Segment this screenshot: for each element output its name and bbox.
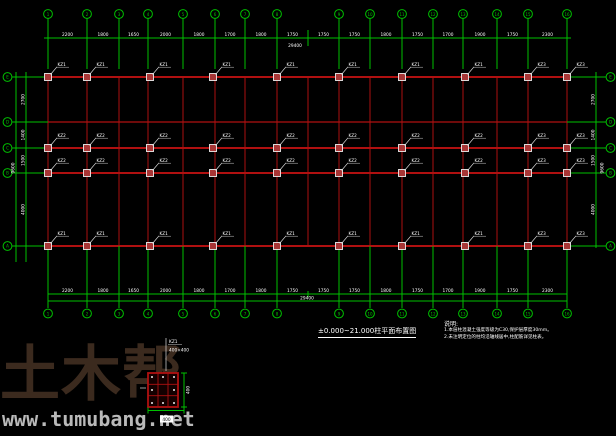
svg-text:A: A — [6, 244, 9, 249]
column-marker — [462, 145, 469, 152]
svg-text:29400: 29400 — [300, 296, 314, 302]
svg-text:1700: 1700 — [225, 288, 236, 294]
column-marker — [564, 145, 571, 152]
svg-text:3: 3 — [118, 12, 121, 17]
svg-text:1800: 1800 — [256, 32, 267, 38]
svg-text:16: 16 — [564, 12, 570, 17]
rebar-dot — [173, 376, 175, 378]
column-marker — [210, 145, 217, 152]
svg-text:KZ1: KZ1 — [223, 231, 232, 236]
svg-text:KZ2: KZ2 — [160, 133, 169, 138]
column-marker — [45, 170, 52, 177]
svg-text:2000: 2000 — [160, 32, 171, 38]
svg-text:D: D — [609, 120, 612, 125]
drawing-notes: 说明: 1.本层柱混凝土强度等级为C30,保护层厚度30mm。 2.未注明定位的… — [444, 321, 552, 342]
svg-text:5: 5 — [182, 12, 185, 17]
svg-text:1750: 1750 — [318, 32, 329, 38]
svg-text:2000: 2000 — [160, 288, 171, 294]
svg-text:1750: 1750 — [318, 288, 329, 294]
svg-text:12: 12 — [430, 312, 436, 317]
svg-text:1750: 1750 — [287, 32, 298, 38]
cad-drawing: 1234567891011121314151622001800165020001… — [0, 0, 616, 436]
svg-text:C: C — [609, 146, 612, 151]
svg-text:1900: 1900 — [475, 288, 486, 294]
column-marker — [147, 74, 154, 81]
svg-text:2700: 2700 — [591, 94, 597, 105]
svg-text:KZ2: KZ2 — [58, 158, 67, 163]
column-marker — [336, 170, 343, 177]
svg-text:KZ1: KZ1 — [223, 62, 232, 67]
right-axis-dimensions: EDCBA27001400150040009600 — [567, 72, 615, 250]
column-marker — [210, 243, 217, 250]
svg-text:8: 8 — [276, 12, 279, 17]
rebar-dot — [162, 376, 164, 378]
svg-text:KZ2: KZ2 — [412, 133, 421, 138]
svg-text:E: E — [609, 75, 612, 80]
svg-text:A: A — [609, 244, 612, 249]
rebar-dot — [162, 402, 164, 404]
svg-text:KZ3: KZ3 — [538, 158, 547, 163]
svg-text:11: 11 — [399, 312, 405, 317]
column-marker — [336, 145, 343, 152]
svg-text:7: 7 — [244, 12, 247, 17]
svg-text:2300: 2300 — [542, 32, 553, 38]
svg-text:2700: 2700 — [21, 94, 27, 105]
column-marker — [45, 145, 52, 152]
svg-text:1800: 1800 — [98, 288, 109, 294]
svg-text:2200: 2200 — [62, 32, 73, 38]
column-marker — [462, 74, 469, 81]
svg-text:KZ1: KZ1 — [475, 62, 484, 67]
svg-text:KZ3: KZ3 — [577, 62, 586, 67]
svg-text:KZ1: KZ1 — [58, 231, 67, 236]
svg-text:9: 9 — [338, 312, 341, 317]
svg-text:1750: 1750 — [507, 288, 518, 294]
svg-text:KZ2: KZ2 — [412, 158, 421, 163]
svg-text:1800: 1800 — [256, 288, 267, 294]
svg-text:KZ1: KZ1 — [58, 62, 67, 67]
svg-text:KZ3: KZ3 — [538, 231, 547, 236]
column-marker — [462, 243, 469, 250]
column-marker — [84, 74, 91, 81]
svg-text:6: 6 — [214, 12, 217, 17]
rebar-dot — [151, 376, 153, 378]
svg-text:1500: 1500 — [21, 155, 27, 166]
svg-text:1800: 1800 — [194, 288, 205, 294]
svg-text:KZ1: KZ1 — [475, 231, 484, 236]
svg-text:1800: 1800 — [381, 288, 392, 294]
column-marker — [147, 243, 154, 250]
svg-text:1700: 1700 — [443, 32, 454, 38]
column-marker — [399, 74, 406, 81]
svg-text:12: 12 — [430, 12, 436, 17]
svg-text:KZ1: KZ1 — [287, 62, 296, 67]
svg-text:1750: 1750 — [287, 288, 298, 294]
notes-item: 2.未注明定位的柱均沿轴线居中,柱配筋详见柱表。 — [444, 335, 552, 342]
column-marker — [399, 243, 406, 250]
column-marker — [45, 74, 52, 81]
svg-text:1: 1 — [47, 12, 50, 17]
svg-text:KZ1: KZ1 — [97, 231, 106, 236]
svg-text:KZ2: KZ2 — [349, 133, 358, 138]
svg-text:2300: 2300 — [542, 288, 553, 294]
svg-text:1700: 1700 — [443, 288, 454, 294]
svg-text:KZ2: KZ2 — [58, 133, 67, 138]
svg-text:1750: 1750 — [349, 288, 360, 294]
svg-text:4: 4 — [147, 12, 150, 17]
svg-text:2: 2 — [86, 312, 89, 317]
svg-text:E: E — [6, 75, 9, 80]
svg-text:KZ2: KZ2 — [287, 133, 296, 138]
column-marker — [274, 170, 281, 177]
drawing-title: ±0.000~21.000柱平面布置图 — [318, 328, 416, 338]
column-marker — [45, 243, 52, 250]
svg-text:9600: 9600 — [11, 162, 17, 173]
svg-text:KZ2: KZ2 — [97, 158, 106, 163]
column-marker — [147, 145, 154, 152]
svg-text:10: 10 — [367, 12, 373, 17]
svg-text:1400: 1400 — [21, 129, 27, 140]
column-marker — [399, 170, 406, 177]
column-marker — [210, 170, 217, 177]
column-marker — [274, 74, 281, 81]
rebar-dot — [151, 402, 153, 404]
column-marker — [564, 74, 571, 81]
column-markers: KZ1KZ1KZ1KZ1KZ1KZ1KZ1KZ1KZ3KZ3KZ2KZ2KZ2K… — [45, 62, 589, 250]
svg-text:16: 16 — [564, 312, 570, 317]
svg-text:KZ3: KZ3 — [538, 133, 547, 138]
bottom-axis-dimensions: 1234567891011121314151622001800165020001… — [44, 246, 572, 318]
svg-text:KZ1: KZ1 — [160, 231, 169, 236]
svg-text:KZ1: KZ1 — [349, 62, 358, 67]
column-marker — [274, 145, 281, 152]
svg-text:B: B — [609, 171, 612, 176]
svg-text:1750: 1750 — [507, 32, 518, 38]
column-marker — [462, 170, 469, 177]
column-grid-lines — [48, 77, 567, 246]
rebar-dot — [173, 389, 175, 391]
svg-text:1750: 1750 — [412, 32, 423, 38]
svg-text:400: 400 — [186, 386, 192, 394]
svg-text:KZ1: KZ1 — [412, 62, 421, 67]
rebar-dot — [173, 402, 175, 404]
svg-text:3: 3 — [118, 312, 121, 317]
svg-text:KZ2: KZ2 — [475, 158, 484, 163]
svg-text:1500: 1500 — [591, 155, 597, 166]
left-axis-dimensions: EDCBA27001400150040009600 — [3, 72, 48, 262]
svg-text:9: 9 — [338, 12, 341, 17]
svg-text:KZ1: KZ1 — [160, 62, 169, 67]
svg-text:11: 11 — [399, 12, 405, 17]
column-marker — [336, 74, 343, 81]
svg-text:6: 6 — [214, 312, 217, 317]
rebar-dot — [151, 389, 153, 391]
svg-text:4000: 4000 — [21, 204, 27, 215]
column-marker — [336, 243, 343, 250]
svg-text:KZ2: KZ2 — [160, 158, 169, 163]
svg-text:1750: 1750 — [412, 288, 423, 294]
svg-text:KZ3: KZ3 — [577, 133, 586, 138]
svg-text:29400: 29400 — [288, 43, 302, 49]
cad-viewer-canvas: 土木帮 www.tumubang.net 1234567891011121314… — [0, 0, 616, 436]
svg-text:KZ3: KZ3 — [538, 62, 547, 67]
svg-text:KZ1: KZ1 — [97, 62, 106, 67]
svg-text:7: 7 — [244, 312, 247, 317]
svg-text:KZ2: KZ2 — [349, 158, 358, 163]
svg-text:1700: 1700 — [225, 32, 236, 38]
svg-text:9600: 9600 — [600, 162, 606, 173]
svg-text:KZ2: KZ2 — [287, 158, 296, 163]
svg-text:1: 1 — [47, 312, 50, 317]
svg-text:15: 15 — [525, 12, 531, 17]
column-marker — [525, 74, 532, 81]
svg-text:1750: 1750 — [349, 32, 360, 38]
column-marker — [564, 243, 571, 250]
svg-text:14: 14 — [494, 312, 500, 317]
column-marker — [399, 145, 406, 152]
svg-text:15: 15 — [525, 312, 531, 317]
svg-text:KZ1: KZ1 — [412, 231, 421, 236]
svg-text:KZ2: KZ2 — [97, 133, 106, 138]
column-marker — [274, 243, 281, 250]
svg-text:KZ2: KZ2 — [223, 133, 232, 138]
svg-text:400×400: 400×400 — [169, 348, 189, 354]
svg-text:1800: 1800 — [98, 32, 109, 38]
svg-text:4000: 4000 — [591, 204, 597, 215]
column-marker — [525, 170, 532, 177]
svg-text:1650: 1650 — [128, 288, 139, 294]
svg-text:13: 13 — [460, 12, 466, 17]
column-marker — [210, 74, 217, 81]
svg-text:5: 5 — [182, 312, 185, 317]
svg-text:13: 13 — [460, 312, 466, 317]
svg-text:KZ3: KZ3 — [577, 231, 586, 236]
svg-text:1900: 1900 — [475, 32, 486, 38]
column-marker — [84, 243, 91, 250]
svg-text:D: D — [6, 120, 9, 125]
column-marker — [525, 243, 532, 250]
svg-text:1650: 1650 — [128, 32, 139, 38]
column-section-detail: KZ1400×400400400 — [140, 338, 192, 423]
column-marker — [84, 145, 91, 152]
svg-text:14: 14 — [494, 12, 500, 17]
svg-text:1800: 1800 — [381, 32, 392, 38]
top-axis-dimensions: 1234567891011121314151622001800165020001… — [44, 10, 572, 69]
svg-text:KZ1: KZ1 — [349, 231, 358, 236]
svg-text:KZ2: KZ2 — [223, 158, 232, 163]
svg-text:KZ1: KZ1 — [169, 339, 178, 345]
svg-text:C: C — [6, 146, 9, 151]
svg-text:1800: 1800 — [194, 32, 205, 38]
svg-text:2200: 2200 — [62, 288, 73, 294]
column-marker — [84, 170, 91, 177]
svg-text:KZ2: KZ2 — [475, 133, 484, 138]
svg-text:400: 400 — [162, 417, 170, 423]
svg-text:KZ3: KZ3 — [577, 158, 586, 163]
svg-text:B: B — [6, 171, 9, 176]
column-marker — [564, 170, 571, 177]
svg-text:1400: 1400 — [591, 129, 597, 140]
svg-text:8: 8 — [276, 312, 279, 317]
svg-text:4: 4 — [147, 312, 150, 317]
column-marker — [525, 145, 532, 152]
column-marker — [147, 170, 154, 177]
svg-text:10: 10 — [367, 312, 373, 317]
svg-text:KZ1: KZ1 — [287, 231, 296, 236]
svg-text:2: 2 — [86, 12, 89, 17]
